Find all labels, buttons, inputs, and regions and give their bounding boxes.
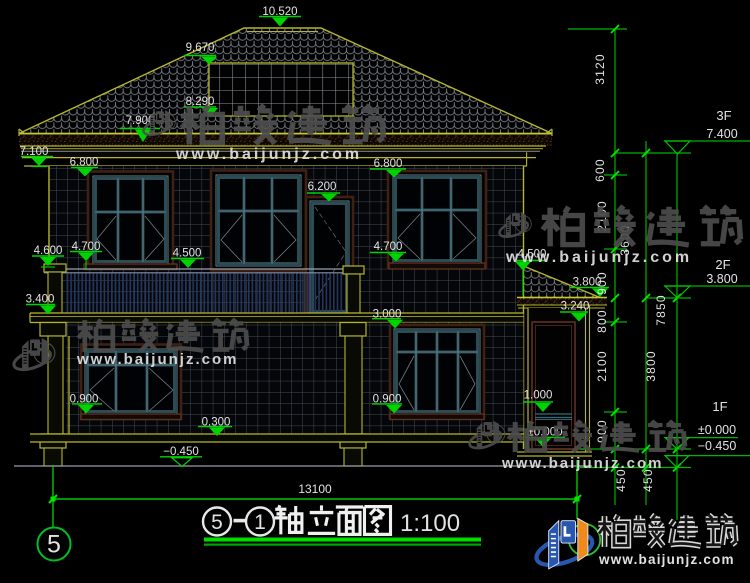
svg-text:2F: 2F <box>715 257 730 272</box>
svg-text:6.800: 6.800 <box>374 158 403 170</box>
svg-text:900: 900 <box>595 271 609 295</box>
svg-text:±0.000: ±0.000 <box>698 423 736 437</box>
svg-text:1: 1 <box>254 511 266 534</box>
svg-text:8.290: 8.290 <box>186 96 215 108</box>
svg-text:www.baijunjz.com: www.baijunjz.com <box>505 249 692 266</box>
svg-text:1F: 1F <box>712 399 727 414</box>
svg-text:www.baijunjz.com: www.baijunjz.com <box>76 351 238 368</box>
svg-text:4.700: 4.700 <box>374 241 403 253</box>
svg-text:3F: 3F <box>716 108 731 123</box>
svg-text:9.670: 9.670 <box>186 42 215 54</box>
svg-text:600: 600 <box>593 158 607 182</box>
svg-text:5: 5 <box>211 511 223 534</box>
svg-text:www.baijunjz.com: www.baijunjz.com <box>175 146 362 163</box>
svg-text:800: 800 <box>595 309 609 333</box>
svg-text:3120: 3120 <box>593 53 607 85</box>
svg-text:5: 5 <box>47 531 61 559</box>
svg-text:www.baijunjz.com: www.baijunjz.com <box>598 552 735 567</box>
svg-text:6.200: 6.200 <box>308 181 337 193</box>
svg-text:7.400: 7.400 <box>706 127 737 141</box>
svg-text:1.000: 1.000 <box>524 390 553 402</box>
svg-text:3.240: 3.240 <box>561 301 590 313</box>
svg-text:2100: 2100 <box>595 350 609 382</box>
svg-text:www.baijunjz.com: www.baijunjz.com <box>501 455 663 472</box>
svg-text:6.800: 6.800 <box>70 157 99 169</box>
svg-text:13100: 13100 <box>298 482 332 496</box>
svg-text:1:100: 1:100 <box>400 510 460 537</box>
svg-text:−0.450: −0.450 <box>698 439 737 453</box>
svg-text:3.800: 3.800 <box>706 272 737 286</box>
svg-text:3.400: 3.400 <box>26 294 55 306</box>
svg-text:3800: 3800 <box>644 350 658 382</box>
svg-text:7850: 7850 <box>654 294 668 326</box>
svg-text:4.500: 4.500 <box>173 248 202 260</box>
svg-text:4.600: 4.600 <box>34 245 63 257</box>
